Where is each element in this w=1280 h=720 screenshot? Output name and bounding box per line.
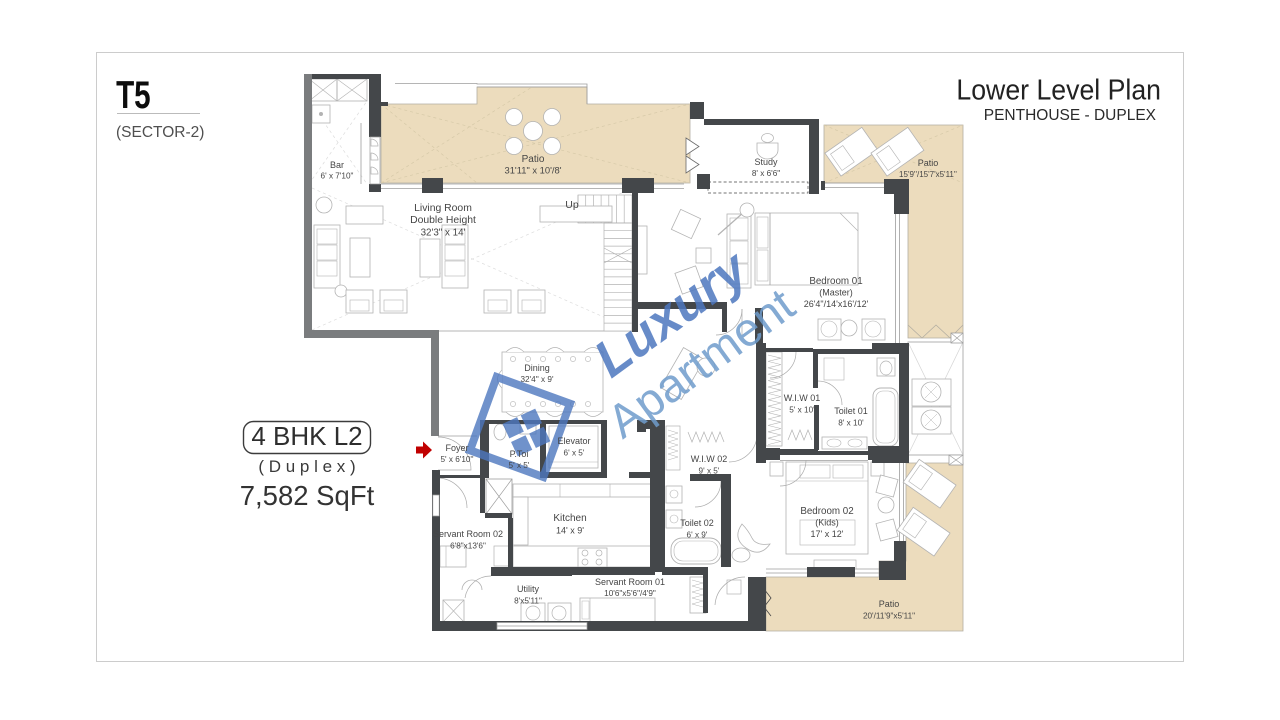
svg-text:Bedroom 01: Bedroom 01 [809,276,862,287]
svg-text:5' x 10': 5' x 10' [789,406,815,415]
svg-text:Up: Up [565,199,579,211]
svg-text:6' x 5': 6' x 5' [564,449,585,458]
svg-text:Lower Level Plan: Lower Level Plan [956,73,1161,105]
svg-text:Servant Room 02: Servant Room 02 [433,529,503,539]
svg-text:6' x 7'10": 6' x 7'10" [321,172,354,181]
svg-text:Toilet 02: Toilet 02 [680,518,714,528]
svg-text:6'8"x13'6": 6'8"x13'6" [450,542,486,551]
svg-text:Kitchen: Kitchen [553,513,586,524]
svg-text:8'x5'11": 8'x5'11" [514,597,542,606]
svg-text:Double Height: Double Height [410,215,476,226]
svg-text:32'4'' x 9': 32'4'' x 9' [520,375,554,384]
svg-text:Elevator: Elevator [557,436,590,446]
svg-text:8' x 10': 8' x 10' [838,419,864,428]
svg-text:5' x 5': 5' x 5' [509,461,530,470]
svg-text:Patio: Patio [522,154,545,165]
svg-text:Bedroom 02: Bedroom 02 [800,506,853,517]
svg-text:(Master): (Master) [819,288,853,298]
svg-text:( D u p l e x ): ( D u p l e x ) [258,457,355,476]
svg-text:Servant Room 01: Servant Room 01 [595,577,665,587]
svg-text:Bar: Bar [330,160,344,170]
svg-text:7,582 SqFt: 7,582 SqFt [240,480,375,511]
svg-text:15'9''/15'7'x5'11'': 15'9''/15'7'x5'11'' [899,170,957,179]
svg-text:26'4"/14'x16'/12': 26'4"/14'x16'/12' [804,299,869,309]
svg-text:Foyer: Foyer [445,443,468,453]
svg-text:Study: Study [754,157,778,167]
svg-text:Living Room: Living Room [414,203,472,214]
svg-text:10'6"x5'6"/4'9": 10'6"x5'6"/4'9" [604,589,656,598]
svg-text:8' x 6'6": 8' x 6'6" [752,169,780,178]
svg-text:14' x 9': 14' x 9' [556,526,584,536]
svg-text:Toilet 01: Toilet 01 [834,406,868,416]
svg-text:17' x 12': 17' x 12' [811,529,844,539]
svg-text:(SECTOR-2): (SECTOR-2) [116,124,204,141]
svg-text:Patio: Patio [879,599,900,609]
svg-text:PENTHOUSE - DUPLEX: PENTHOUSE - DUPLEX [984,107,1157,124]
svg-text:(Kids): (Kids) [815,518,839,528]
svg-text:T5: T5 [116,74,151,117]
svg-text:6' x 9': 6' x 9' [687,531,708,540]
svg-text:31'11" x 10'/8': 31'11" x 10'/8' [505,165,562,176]
svg-text:20'/11'9"x5'11": 20'/11'9"x5'11" [863,612,915,621]
svg-text:Patio: Patio [918,158,939,168]
svg-text:32'3" x 14': 32'3" x 14' [421,227,466,238]
svg-text:4 BHK L2: 4 BHK L2 [251,421,362,451]
svg-text:P.Toi: P.Toi [510,449,529,459]
svg-text:Utility: Utility [517,584,539,594]
svg-text:9' x 5': 9' x 5' [699,467,720,476]
svg-text:W.I.W 02: W.I.W 02 [691,454,728,464]
svg-text:Dining: Dining [524,363,550,373]
svg-text:5' x 6'10'': 5' x 6'10'' [440,455,474,464]
svg-text:W.I.W 01: W.I.W 01 [784,393,821,403]
